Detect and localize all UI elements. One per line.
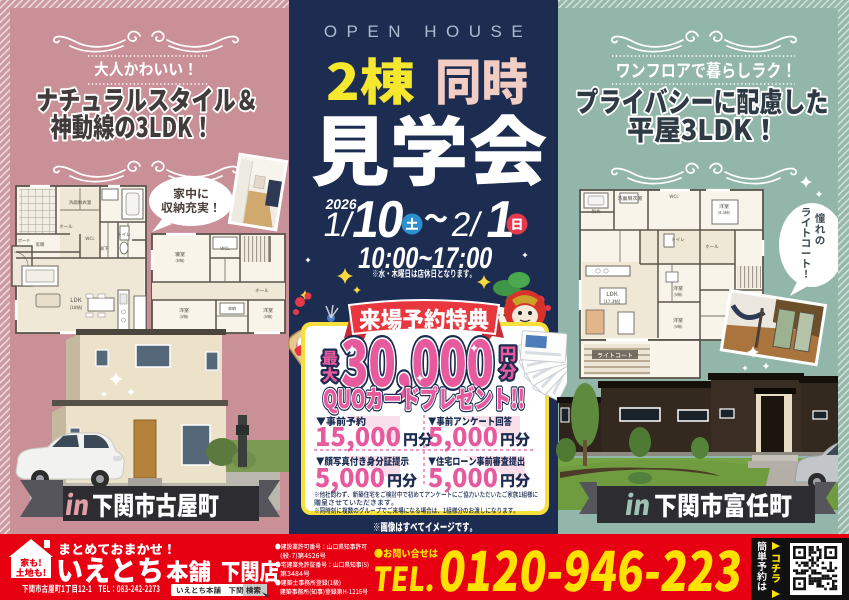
svg-text:OPEN HOUSE: OPEN HOUSE [324,22,532,41]
svg-text:10: 10 [348,189,407,248]
